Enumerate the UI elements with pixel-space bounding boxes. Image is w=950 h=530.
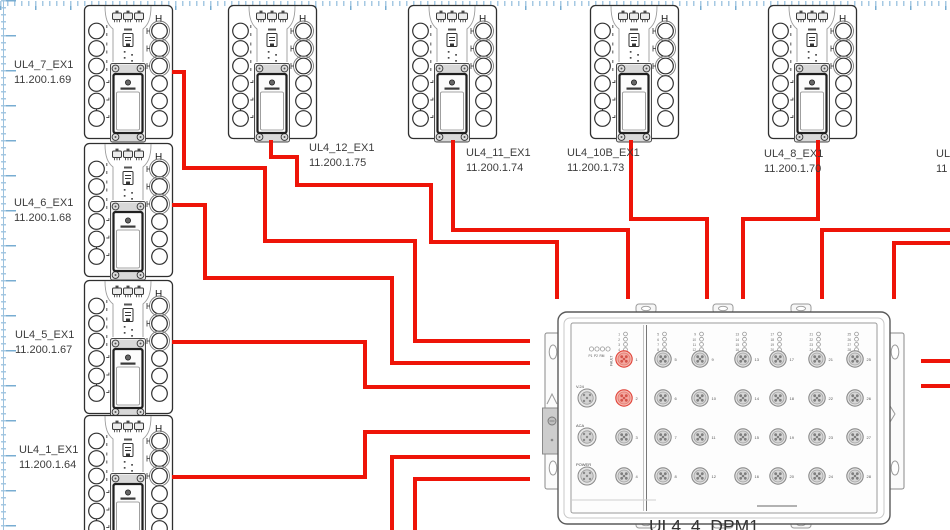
port-pin [623,475,626,478]
rj45-detail [126,454,130,457]
io-port-circle[interactable] [89,298,105,314]
m12-socket-circle[interactable] [836,58,852,74]
port-led-number: 25 [847,333,851,337]
bracket-hole [891,461,899,475]
port-led-number: 10 [692,338,696,342]
module-window [801,92,824,130]
m12-socket-circle[interactable] [296,93,312,109]
io-port-circle[interactable] [89,76,105,92]
io-port-circle[interactable] [773,58,789,74]
io-port-circle[interactable] [595,23,611,39]
port-led-number: 26 [847,338,851,342]
port-mark [106,443,107,446]
connector-label: ACA [576,423,585,428]
indicator-dot [124,467,126,469]
diagram-canvas[interactable]: HHHHHHHHP1P2RMFAULTV.24ACAPOWER123412345… [0,0,950,530]
status-led-label: P2 [594,354,598,358]
rj45-detail [450,44,454,47]
module-screw-center [140,411,142,413]
io-port-circle[interactable] [595,76,611,92]
port-pin [739,438,742,441]
ex-device[interactable]: H [85,416,173,530]
m12-socket-circle[interactable] [152,451,168,467]
port-pin [816,475,819,478]
m12-socket-circle[interactable] [836,111,852,127]
brand-logo-dot [125,218,130,223]
port-mark [430,60,431,63]
port-mark [106,453,107,456]
port-mark [430,25,431,28]
m12-socket-circle[interactable] [152,468,168,484]
connector-pin [127,149,130,151]
port-pin [701,438,704,441]
m12-socket-circle[interactable] [658,111,674,127]
port-number-label: 14 [755,396,760,401]
m12-socket-circle[interactable] [152,93,168,109]
module-screw-center [464,68,466,70]
io-port-circle[interactable] [413,93,429,109]
port-mark [790,25,791,28]
io-port-circle[interactable] [773,111,789,127]
port-mark [106,318,107,321]
module-window [117,367,140,405]
m12-socket-circle[interactable] [152,76,168,92]
indicator-dot [124,189,126,191]
port-pin [659,472,662,475]
io-port-circle[interactable] [89,23,105,39]
port-led [855,332,859,336]
port-mark [106,308,107,311]
port-mark [106,25,107,28]
port-pin [662,358,665,361]
port-pin [739,360,742,363]
m12-socket-circle[interactable] [836,93,852,109]
io-port-circle[interactable] [89,433,105,449]
port-mark [250,68,251,71]
module-screw-center [799,68,801,70]
brand-text-bar [121,363,136,365]
port-mark [106,198,107,201]
indicator-dot [815,60,817,62]
port-led [855,337,859,341]
m12-socket-circle[interactable] [476,76,492,92]
m12-socket-circle[interactable] [658,58,674,74]
io-port-circle[interactable] [89,316,105,332]
io-port-circle[interactable] [773,93,789,109]
port-number-label: 22 [829,396,834,401]
ex-device[interactable]: H [409,6,497,143]
m12-socket-circle[interactable] [152,368,168,384]
port-pin [856,438,859,441]
m12-socket-circle[interactable] [152,179,168,195]
port-mark [106,51,107,54]
port-mark [612,33,613,36]
brand-logo-dot [449,80,454,85]
io-port-circle[interactable] [89,333,105,349]
brand-logo-dot [269,80,274,85]
io-port-circle[interactable] [89,486,105,502]
io-port-circle[interactable] [89,111,105,127]
module-screw-center [621,68,623,70]
ex-device[interactable]: H [769,6,857,143]
io-port-circle[interactable] [413,111,429,127]
bracket-hole [549,461,557,475]
port-mark [612,60,613,63]
port-mark [106,189,107,192]
indicator-dot [630,51,632,53]
io-port-circle[interactable] [413,76,429,92]
port-pin [664,472,667,475]
port-pin [818,477,821,480]
module-screw-center [646,68,648,70]
port-mark [106,181,107,184]
ex-device[interactable]: H [85,281,173,418]
port-mark [250,25,251,28]
cable[interactable] [894,243,950,299]
port-pin [701,433,704,436]
port-pin [744,355,747,358]
bus-connector-icon [437,13,446,20]
port-pin [813,433,816,436]
brand-text-bar [121,498,136,500]
device-name: UL4_1_EX1 [19,443,78,458]
m12-socket-circle[interactable] [152,231,168,247]
bus-connector-icon [797,13,806,20]
dpm-device[interactable]: P1P2RMFAULTV.24ACAPOWER12341234567856789… [543,304,905,528]
brand-logo-dot [809,80,814,85]
status-led [595,347,599,351]
m12-socket-circle[interactable] [658,23,674,39]
m12-socket-circle[interactable] [152,333,168,349]
port-led-number: 13 [735,333,739,337]
port-pin [696,355,699,358]
m12-socket-circle[interactable] [658,41,674,57]
io-port-circle[interactable] [89,58,105,74]
module-screw-center [824,136,826,138]
port-pin [813,472,816,475]
rj45-detail [126,319,130,322]
port-led-number: 19 [770,343,774,347]
m12-socket-circle[interactable] [152,316,168,332]
connector-pin [138,149,141,151]
connector-pin [138,286,141,288]
bus-connector-icon [113,151,122,158]
port-pin [779,472,782,475]
brand-text-bar [445,88,460,90]
device-label: UL4_6_EX111.200.1.68 [14,196,73,226]
bus-connector-icon [124,423,133,430]
m12-socket-circle[interactable] [296,41,312,57]
ex-device[interactable]: H [85,6,173,143]
m12-socket-circle[interactable] [296,58,312,74]
cable[interactable] [172,432,530,477]
port-mark [106,43,107,46]
module-screw-center [115,206,117,208]
port-pin [818,355,821,358]
port-pin [779,477,782,480]
port-pin [739,399,742,402]
io-port-circle[interactable] [89,231,105,247]
port-pin [774,433,777,436]
io-port-circle[interactable] [595,93,611,109]
port-pin [816,436,819,439]
connector-pin [583,433,585,435]
module-screw-center [646,136,648,138]
port-led-number: 9 [694,333,696,337]
device-label: UL4_1_EX111.200.1.64 [19,443,78,473]
port-number-label: 10 [712,396,717,401]
io-port-circle[interactable] [233,76,249,92]
brand-text-bar [627,88,642,90]
port-number-label: 21 [829,357,834,362]
io-port-circle[interactable] [89,249,105,265]
m12-socket-circle[interactable] [152,111,168,127]
module-screw-center [259,68,261,70]
port-pin [739,355,742,358]
port-pin [774,472,777,475]
m12-socket-circle[interactable] [152,433,168,449]
port-pin [659,360,662,363]
port-pin [813,394,816,397]
io-port-circle[interactable] [233,111,249,127]
m12-socket-circle[interactable] [152,23,168,39]
io-port-circle[interactable] [595,58,611,74]
io-port-circle[interactable] [233,23,249,39]
bus-connector-icon [135,13,144,20]
io-port-circle[interactable] [773,76,789,92]
io-port-circle[interactable] [89,351,105,367]
connector-pin [589,472,591,474]
module-screw-center [140,274,142,276]
device-name: UL4_10B_EX1 [567,146,640,161]
device-label: UL4_11_EX111.200.1.74 [466,146,531,176]
m12-socket-circle[interactable] [152,196,168,212]
port-led-number: 5 [657,333,659,337]
io-port-circle[interactable] [89,451,105,467]
port-mark [106,68,107,71]
connector-pin [644,11,647,13]
port-pin [623,436,626,439]
m12-socket-circle[interactable] [836,76,852,92]
bus-connector-icon [257,13,266,20]
port-pin [659,394,662,397]
m12-socket-circle[interactable] [152,386,168,402]
indicator-dot [124,57,126,59]
port-pin [779,438,782,441]
ex-device[interactable]: H [591,6,679,143]
indicator-dot [124,461,126,463]
port-pin [816,358,819,361]
port-pin [774,355,777,358]
io-port-circle[interactable] [233,41,249,57]
cable[interactable] [822,230,950,299]
io-port-circle[interactable] [89,468,105,484]
port-mark [106,33,107,36]
rj45-cover-icon [124,29,132,31]
io-port-circle[interactable] [89,41,105,57]
port-pin [813,438,816,441]
m12-socket-circle[interactable] [658,76,674,92]
port-pin [701,355,704,358]
brand-logo-dot [125,490,130,495]
indicator-dot [637,60,639,62]
io-port-circle[interactable] [89,386,105,402]
io-port-circle[interactable] [89,368,105,384]
io-port-circle[interactable] [413,41,429,57]
port-pin [659,355,662,358]
device-name: UL [936,147,950,162]
m12-socket-circle[interactable] [836,41,852,57]
connector-label: POWER [576,462,591,467]
io-port-circle[interactable] [89,93,105,109]
port-led-number: 7 [657,343,659,347]
io-port-circle[interactable] [595,41,611,57]
io-port-circle[interactable] [89,503,105,519]
port-pin [818,472,821,475]
port-led [700,337,704,341]
m12-socket-circle[interactable] [152,161,168,177]
indicator-dot [637,54,639,56]
port-pin [696,394,699,397]
m12-socket-circle[interactable] [476,111,492,127]
io-port-circle[interactable] [413,23,429,39]
port-led [778,337,782,341]
io-port-circle[interactable] [89,196,105,212]
port-pin [625,477,628,480]
cable[interactable] [392,457,530,530]
ex-device[interactable]: H [229,6,317,143]
port-led [817,337,821,341]
m12-socket-circle[interactable] [152,351,168,367]
port-mark [612,51,613,54]
port-pin [851,472,854,475]
io-port-circle[interactable] [233,93,249,109]
status-led-label: P1 [589,354,593,358]
port-pin [777,358,780,361]
port-mark [106,163,107,166]
rj45-cover-icon [124,304,132,306]
port-pin [774,394,777,397]
cable[interactable] [631,140,707,299]
port-pin [623,397,626,400]
port-pin [699,475,702,478]
io-port-circle[interactable] [89,161,105,177]
m12-socket-circle[interactable] [476,23,492,39]
port-pin [854,436,857,439]
port-led [817,332,821,336]
port-pin [744,394,747,397]
port-mark [790,60,791,63]
bus-connector-icon [113,423,122,430]
m12-socket-circle[interactable] [476,93,492,109]
io-port-circle[interactable] [89,214,105,230]
device-ip: 11.200.1.73 [567,161,640,176]
port-pin [779,433,782,436]
m12-socket-circle[interactable] [152,486,168,502]
rj45-cover-icon [808,29,816,31]
m12-socket-circle[interactable] [152,214,168,230]
port-pin [701,360,704,363]
port-pin [744,477,747,480]
device-name: UL4_5_EX1 [15,328,74,343]
io-port-circle[interactable] [233,58,249,74]
indicator-dot [808,57,810,59]
m12-socket-circle[interactable] [152,41,168,57]
device-name: UL4_11_EX1 [466,146,531,161]
cable[interactable] [415,479,530,530]
port-pin [851,477,854,480]
port-pin [659,477,662,480]
m12-socket-circle[interactable] [152,58,168,74]
m12-socket-circle[interactable] [658,93,674,109]
port-mark [106,171,107,174]
device-ip: 11.200.1.68 [14,211,73,226]
port-led [817,343,821,347]
bracket-hole [891,345,899,359]
indicator-dot [124,195,126,197]
port-number-label: 24 [829,474,834,479]
port-led [663,332,667,336]
module-window [261,92,284,130]
port-led-number: 27 [847,343,851,347]
connector-pin [138,421,141,423]
io-port-circle[interactable] [773,23,789,39]
connector-pin [589,439,591,441]
port-pin [662,436,665,439]
port-led [624,337,628,341]
port-pin [625,472,628,475]
port-pin [774,399,777,402]
ex-device[interactable]: H [85,144,173,281]
port-pin [620,438,623,441]
io-port-circle[interactable] [595,111,611,127]
port-pin [816,397,819,400]
port-pin [851,438,854,441]
connector-pin [451,11,454,13]
connector-pin [271,11,274,13]
io-port-circle[interactable] [89,179,105,195]
module-screw-center [464,136,466,138]
m12-socket-circle[interactable] [296,111,312,127]
port-mark [250,43,251,46]
port-number-label: 15 [755,435,760,440]
port-pin [699,358,702,361]
brand-text-bar [805,88,820,90]
rj45-detail [126,182,130,185]
m12-socket-circle[interactable] [152,298,168,314]
m12-socket-circle[interactable] [836,23,852,39]
m12-socket-circle[interactable] [296,76,312,92]
connector-pin [586,397,588,399]
port-pin [813,477,816,480]
m12-socket-circle[interactable] [152,249,168,265]
connector-pin [116,149,119,151]
m12-socket-circle[interactable] [152,503,168,519]
port-pin [739,477,742,480]
dpm-label: UL4_4_DPM1 [649,516,759,530]
port-pin [699,436,702,439]
m12-socket-circle[interactable] [296,23,312,39]
m12-socket-circle[interactable] [476,41,492,57]
status-led [600,347,604,351]
io-port-circle[interactable] [773,41,789,57]
m12-socket-circle[interactable] [476,58,492,74]
io-port-circle[interactable] [413,58,429,74]
module-screw-center [115,136,117,138]
bus-connector-icon [135,288,144,295]
module-screw-center [140,478,142,480]
port-mark [430,51,431,54]
